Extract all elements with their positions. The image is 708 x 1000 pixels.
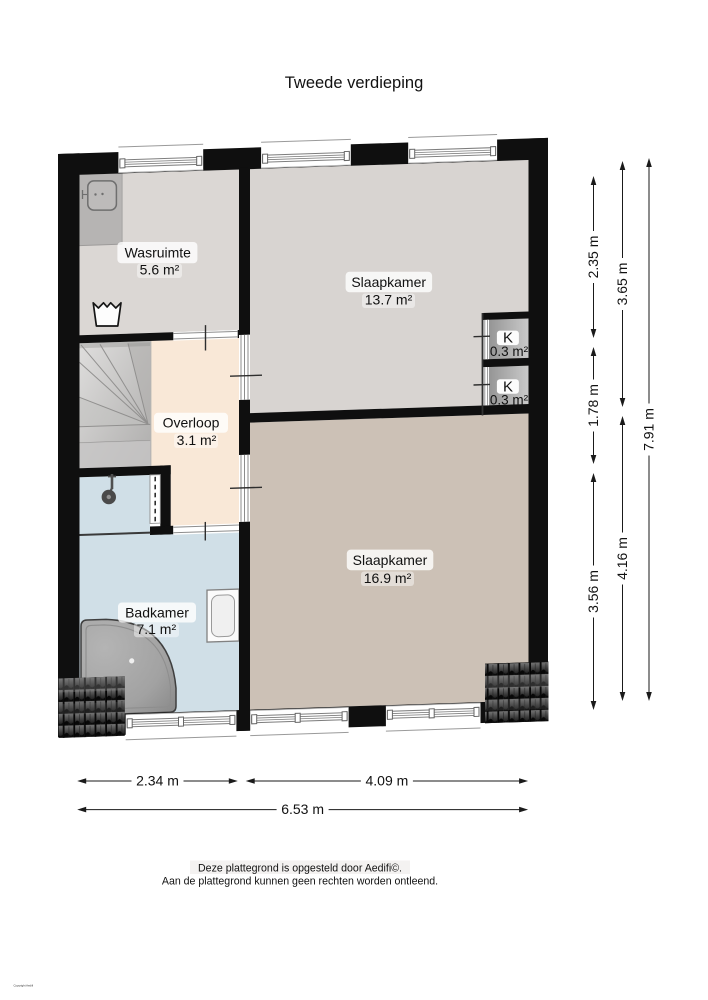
svg-text:Wasruimte: Wasruimte	[125, 245, 192, 261]
svg-text:Slaapkamer: Slaapkamer	[353, 552, 428, 568]
svg-text:5.6 m²: 5.6 m²	[140, 262, 180, 278]
svg-text:2.34 m: 2.34 m	[136, 773, 179, 789]
svg-text:7.1 m²: 7.1 m²	[136, 621, 176, 637]
svg-text:Slaapkamer: Slaapkamer	[351, 274, 426, 290]
svg-text:Tweede verdieping: Tweede verdieping	[285, 74, 424, 92]
svg-text:4.16 m: 4.16 m	[614, 537, 630, 580]
svg-text:Overloop: Overloop	[163, 415, 220, 431]
svg-text:0.3 m²: 0.3 m²	[490, 344, 529, 359]
svg-text:3.1 m²: 3.1 m²	[177, 432, 217, 448]
svg-text:Aan de plattegrond kunnen geen: Aan de plattegrond kunnen geen rechten w…	[162, 876, 438, 888]
svg-text:13.7 m²: 13.7 m²	[365, 292, 413, 308]
svg-text:6.53 m: 6.53 m	[281, 801, 324, 817]
svg-text:2.35 m: 2.35 m	[585, 236, 601, 279]
svg-text:Deze plattegrond is opgesteld: Deze plattegrond is opgesteld door Aedif…	[198, 863, 402, 875]
svg-text:1.78 m: 1.78 m	[585, 384, 601, 427]
svg-text:Badkamer: Badkamer	[125, 605, 189, 621]
svg-text:3.56 m: 3.56 m	[585, 570, 601, 613]
svg-text:Copyright Aedifi: Copyright Aedifi	[14, 984, 34, 988]
svg-text:16.9 m²: 16.9 m²	[364, 570, 412, 586]
svg-text:4.09 m: 4.09 m	[365, 773, 408, 789]
svg-text:3.65 m: 3.65 m	[614, 263, 630, 306]
svg-text:0.3 m²: 0.3 m²	[490, 393, 529, 408]
svg-text:7.91 m: 7.91 m	[641, 408, 657, 451]
